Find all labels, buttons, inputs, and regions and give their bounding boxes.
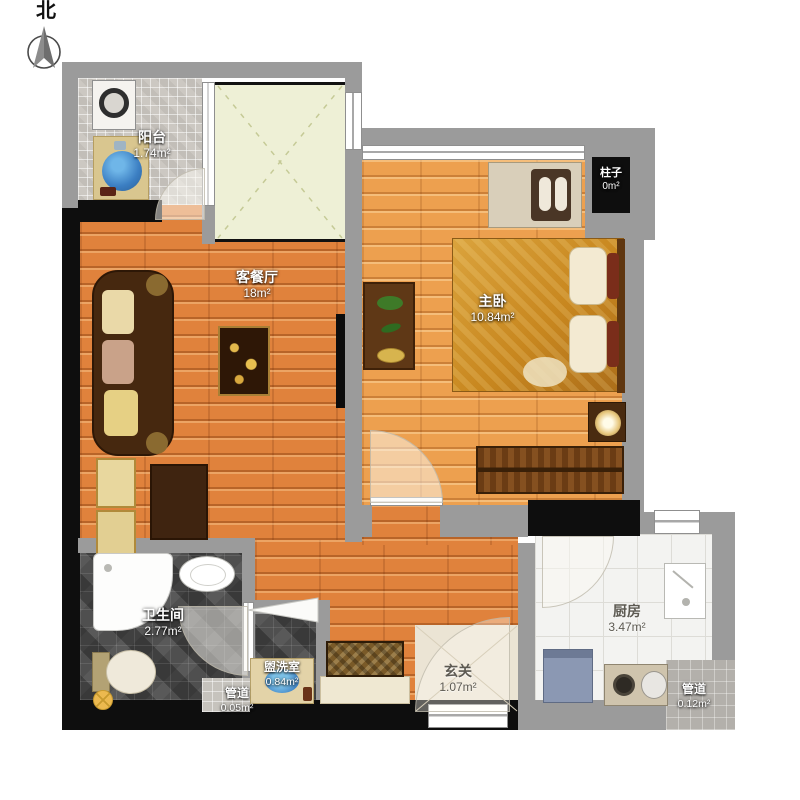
fridge <box>543 649 593 703</box>
wall-segment <box>345 128 655 145</box>
sofa-armrest <box>146 432 168 454</box>
wall-segment <box>528 500 640 536</box>
wall-segment <box>440 505 528 537</box>
plant <box>380 322 401 335</box>
round-rug <box>102 151 142 191</box>
wall-segment <box>62 62 78 208</box>
washing-machine-drum <box>99 88 129 118</box>
sofa-cushion <box>102 340 134 384</box>
kitchen-pass-door <box>654 510 700 534</box>
nightstand <box>588 402 626 442</box>
stove <box>604 664 668 706</box>
bathroom-sink <box>179 556 235 592</box>
sofa <box>92 270 174 456</box>
faucet <box>672 570 693 588</box>
wall-segment <box>700 512 735 534</box>
table-lamp <box>595 410 621 436</box>
wall-segment <box>518 543 535 705</box>
void-shaft <box>215 82 345 242</box>
toilet <box>92 650 156 692</box>
balcony-mat <box>93 136 149 200</box>
floor-drain <box>93 690 113 710</box>
bedroom-window <box>362 145 585 160</box>
plant <box>377 296 403 310</box>
wall-segment <box>622 240 644 515</box>
bed-throw <box>523 357 567 387</box>
vanity-sink <box>265 669 299 693</box>
shower-drain <box>104 564 112 572</box>
balcony-item <box>100 187 116 196</box>
wall-segment <box>345 245 362 542</box>
wall-segment <box>362 505 372 537</box>
wall-segment <box>255 600 316 614</box>
bed-accent-pillow <box>607 321 619 367</box>
wall-segment <box>62 62 362 78</box>
dresser <box>488 162 582 228</box>
bed-pillow <box>569 315 607 373</box>
bench-base <box>320 676 410 704</box>
floor-plan: 北 <box>0 0 800 800</box>
pipe-shaft-large <box>666 660 735 730</box>
wall-segment <box>78 200 162 222</box>
bed <box>452 238 624 392</box>
wall-segment <box>345 150 362 245</box>
washing-machine <box>92 80 136 130</box>
pot <box>641 671 667 699</box>
vanity-item <box>303 687 312 701</box>
toilet-bowl <box>106 650 156 694</box>
north-label: 北 <box>18 0 74 22</box>
compass-icon <box>18 22 74 78</box>
sink-basin <box>190 564 226 586</box>
dining-chair <box>96 510 136 558</box>
sofa-armrest <box>146 274 168 296</box>
console-table <box>363 282 415 370</box>
washroom-vanity <box>250 658 314 704</box>
gold-tray <box>377 348 405 363</box>
stove-burner <box>613 674 635 696</box>
coffee-table <box>218 326 270 396</box>
wall-segment <box>345 62 362 92</box>
dresser-decor <box>539 177 551 211</box>
bed-accent-pillow <box>607 253 619 299</box>
dining-table <box>150 464 208 540</box>
wardrobe <box>476 446 624 494</box>
balcony-item <box>114 141 126 150</box>
bed-pillow <box>569 247 607 305</box>
dresser-decor <box>555 177 567 211</box>
void-window <box>345 92 362 150</box>
sofa-cushion <box>102 290 134 334</box>
kitchen-sink <box>664 563 706 619</box>
dining-chair <box>96 458 136 508</box>
pipe-shaft-small <box>202 678 250 712</box>
fridge-top <box>544 650 592 658</box>
tv <box>336 314 345 408</box>
compass: 北 <box>18 0 74 83</box>
kitchen-sink-drain <box>682 598 690 606</box>
wall-segment <box>62 208 80 730</box>
pillar <box>592 157 630 213</box>
sofa-cushion <box>104 390 138 436</box>
bench-cushion <box>326 641 404 677</box>
